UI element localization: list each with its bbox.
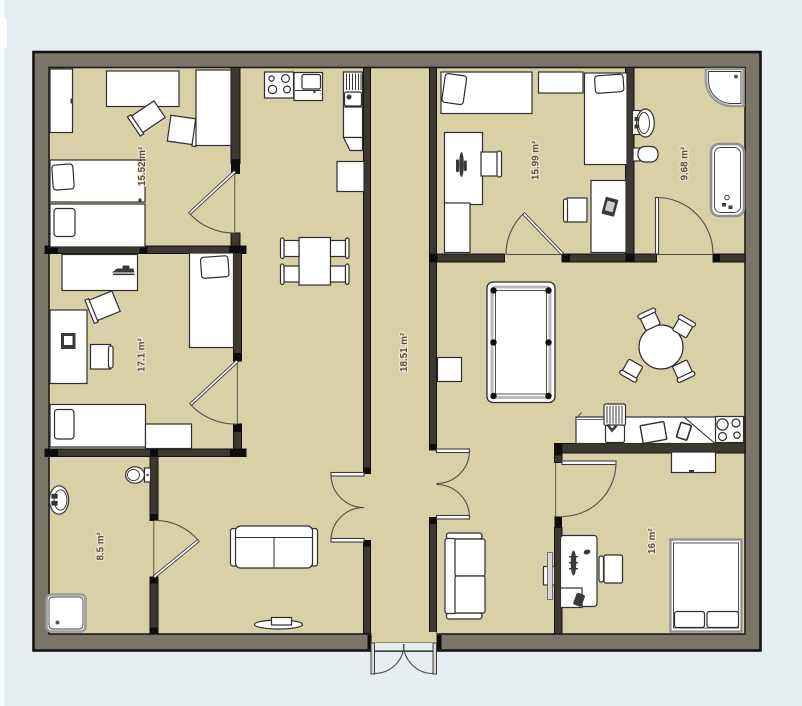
svg-text:15.52 m²: 15.52 m² — [137, 146, 148, 186]
svg-text:18.51 m²: 18.51 m² — [399, 332, 410, 372]
svg-text:17.1 m²: 17.1 m² — [137, 337, 148, 372]
svg-text:8.5 m²: 8.5 m² — [96, 531, 107, 560]
svg-text:15.99 m²: 15.99 m² — [531, 140, 542, 180]
svg-text:16 m²: 16 m² — [647, 528, 658, 554]
svg-text:9.68 m²: 9.68 m² — [680, 146, 691, 181]
